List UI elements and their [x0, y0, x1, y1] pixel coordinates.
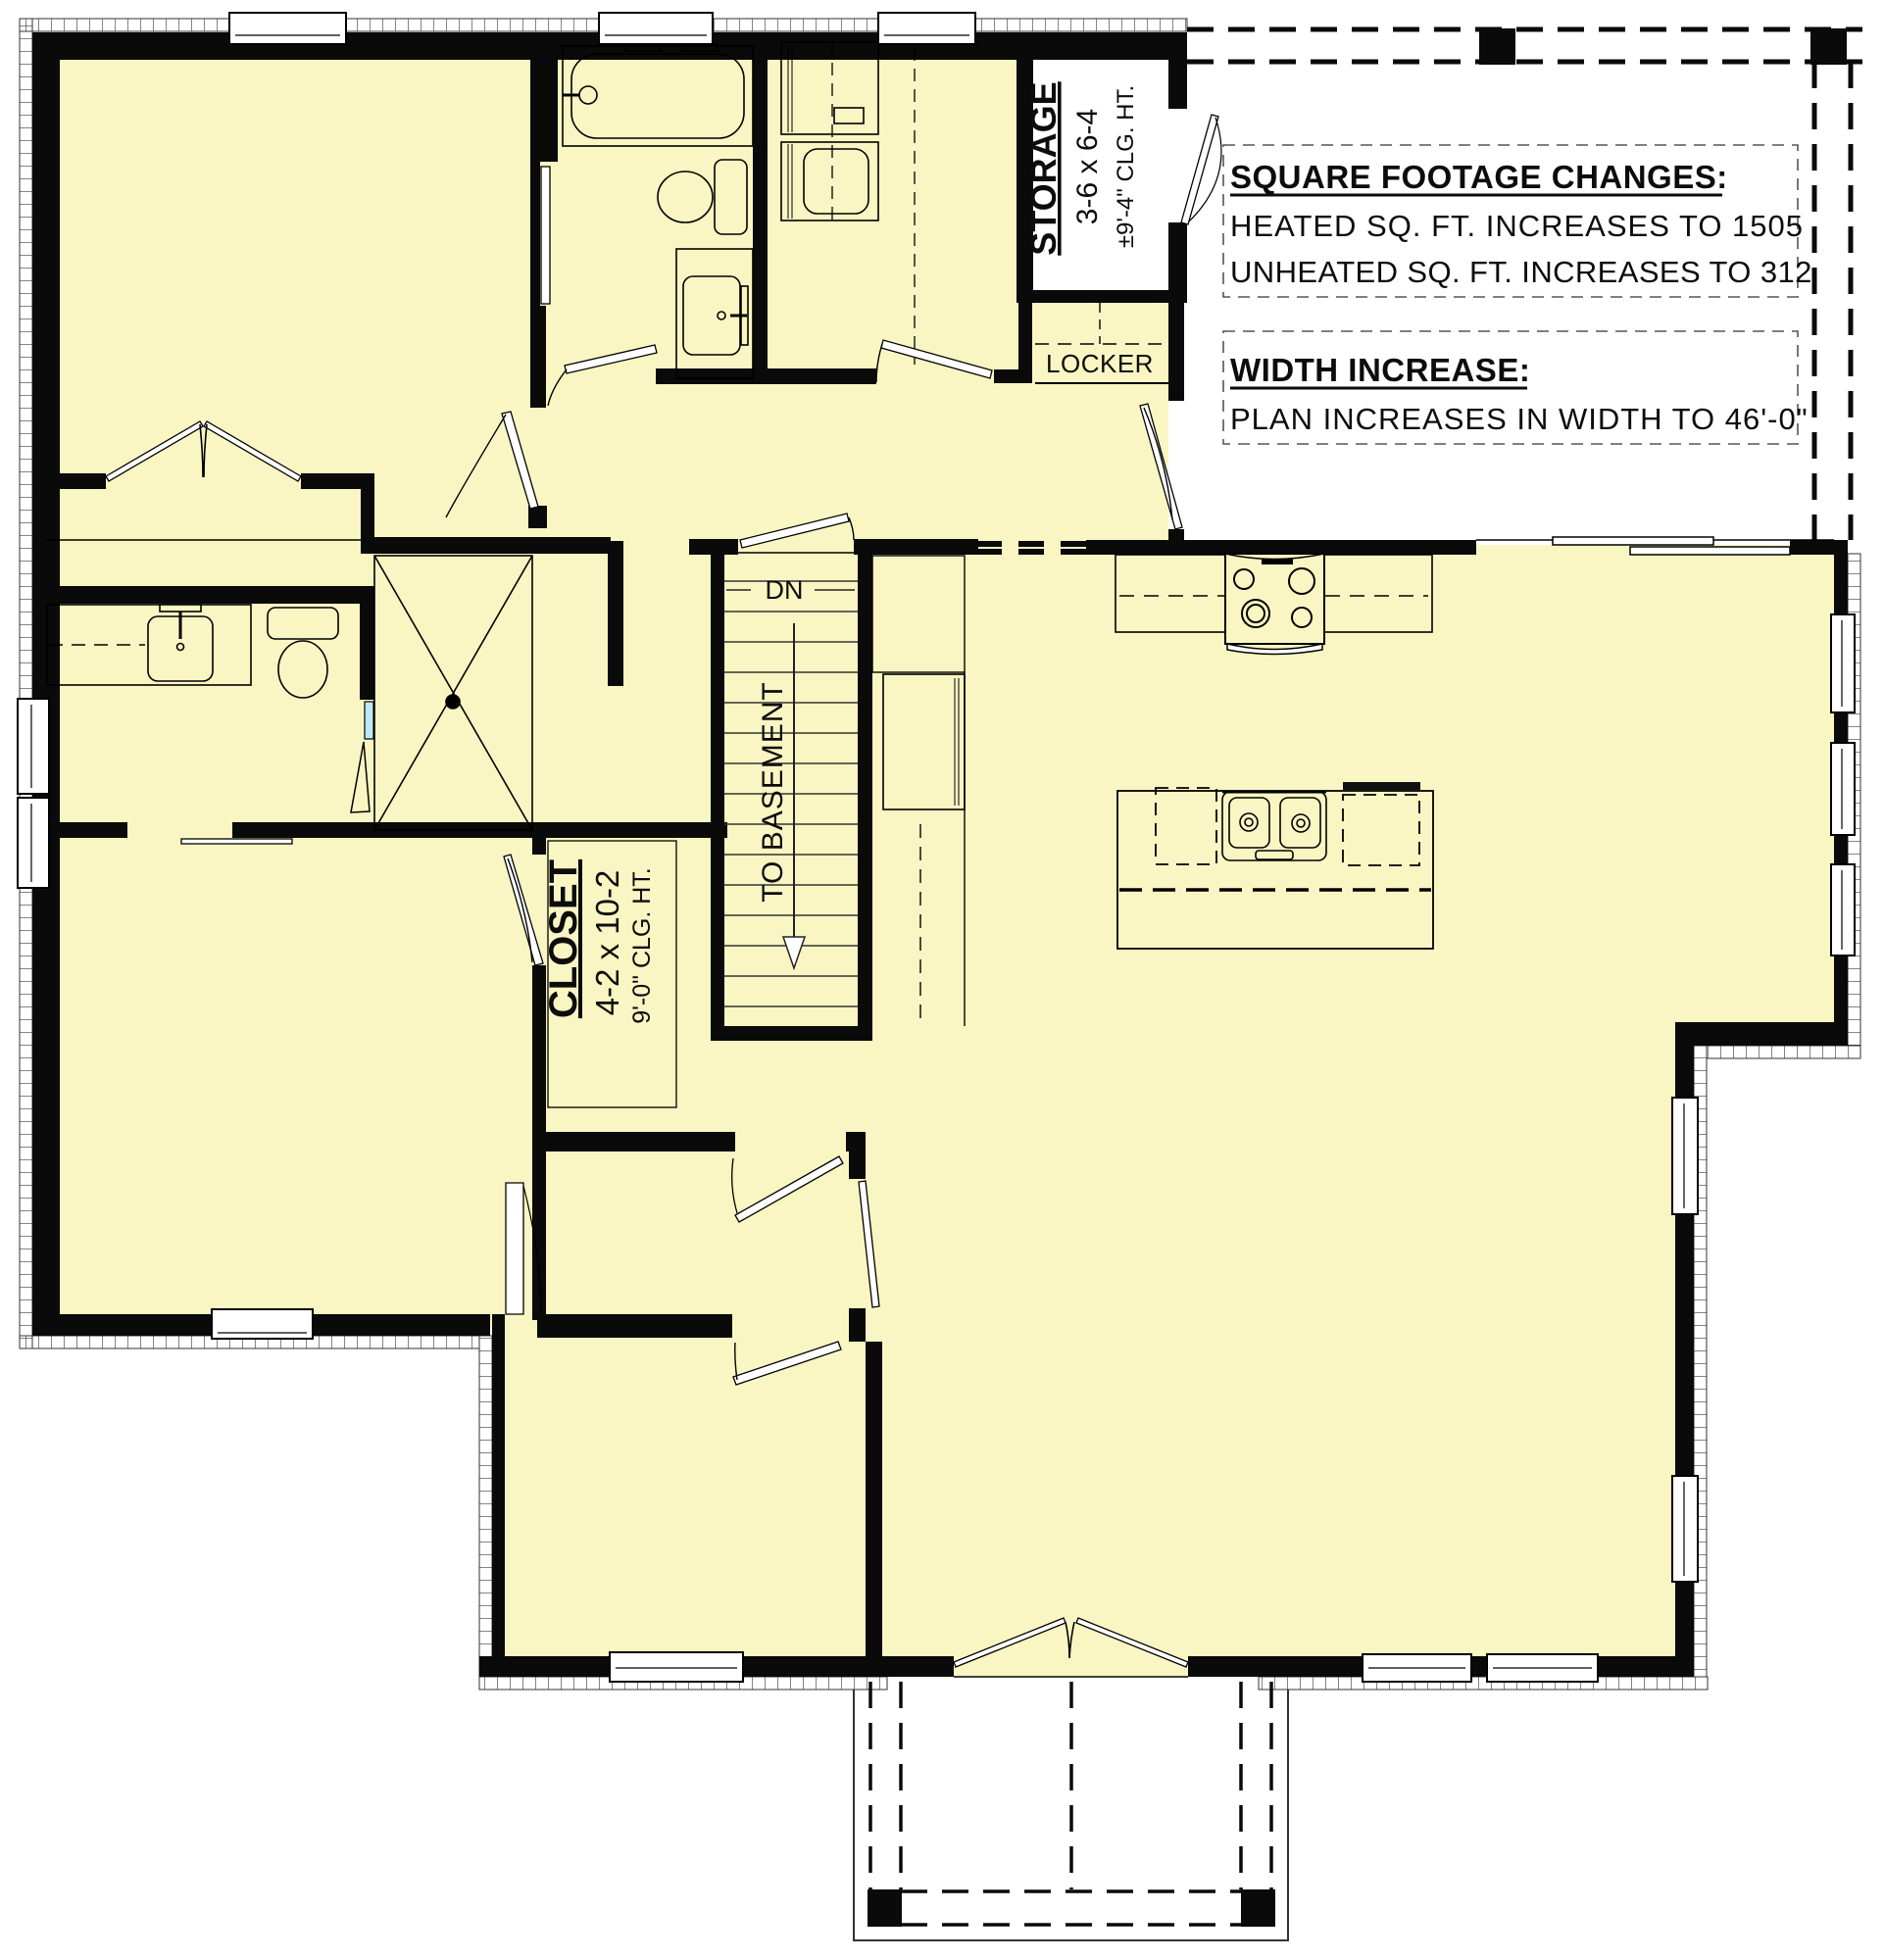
svg-text:3-6 x 6-4: 3-6 x 6-4 — [1071, 109, 1104, 224]
svg-text:WIDTH INCREASE:: WIDTH INCREASE: — [1230, 352, 1530, 388]
svg-text:SQUARE FOOTAGE CHANGES:: SQUARE FOOTAGE CHANGES: — [1230, 159, 1728, 195]
svg-text:9'-0" CLG. HT.: 9'-0" CLG. HT. — [628, 867, 656, 1024]
svg-text:DN: DN — [766, 575, 804, 605]
svg-text:4-2 x 10-2: 4-2 x 10-2 — [589, 870, 625, 1016]
svg-text:CLOSET: CLOSET — [542, 859, 585, 1018]
svg-text:LOCKER: LOCKER — [1046, 349, 1154, 378]
svg-text:STORAGE: STORAGE — [1023, 81, 1064, 255]
svg-text:TO BASEMENT: TO BASEMENT — [757, 681, 789, 902]
svg-text:PLAN INCREASES IN WIDTH TO 46': PLAN INCREASES IN WIDTH TO 46'-0" — [1230, 402, 1809, 436]
svg-text:HEATED SQ. FT. INCREASES TO 15: HEATED SQ. FT. INCREASES TO 1505 — [1230, 209, 1804, 243]
svg-text:UNHEATED SQ. FT. INCREASES TO: UNHEATED SQ. FT. INCREASES TO 312 — [1230, 255, 1812, 289]
svg-text:±9'-4" CLG. HT.: ±9'-4" CLG. HT. — [1113, 85, 1139, 248]
